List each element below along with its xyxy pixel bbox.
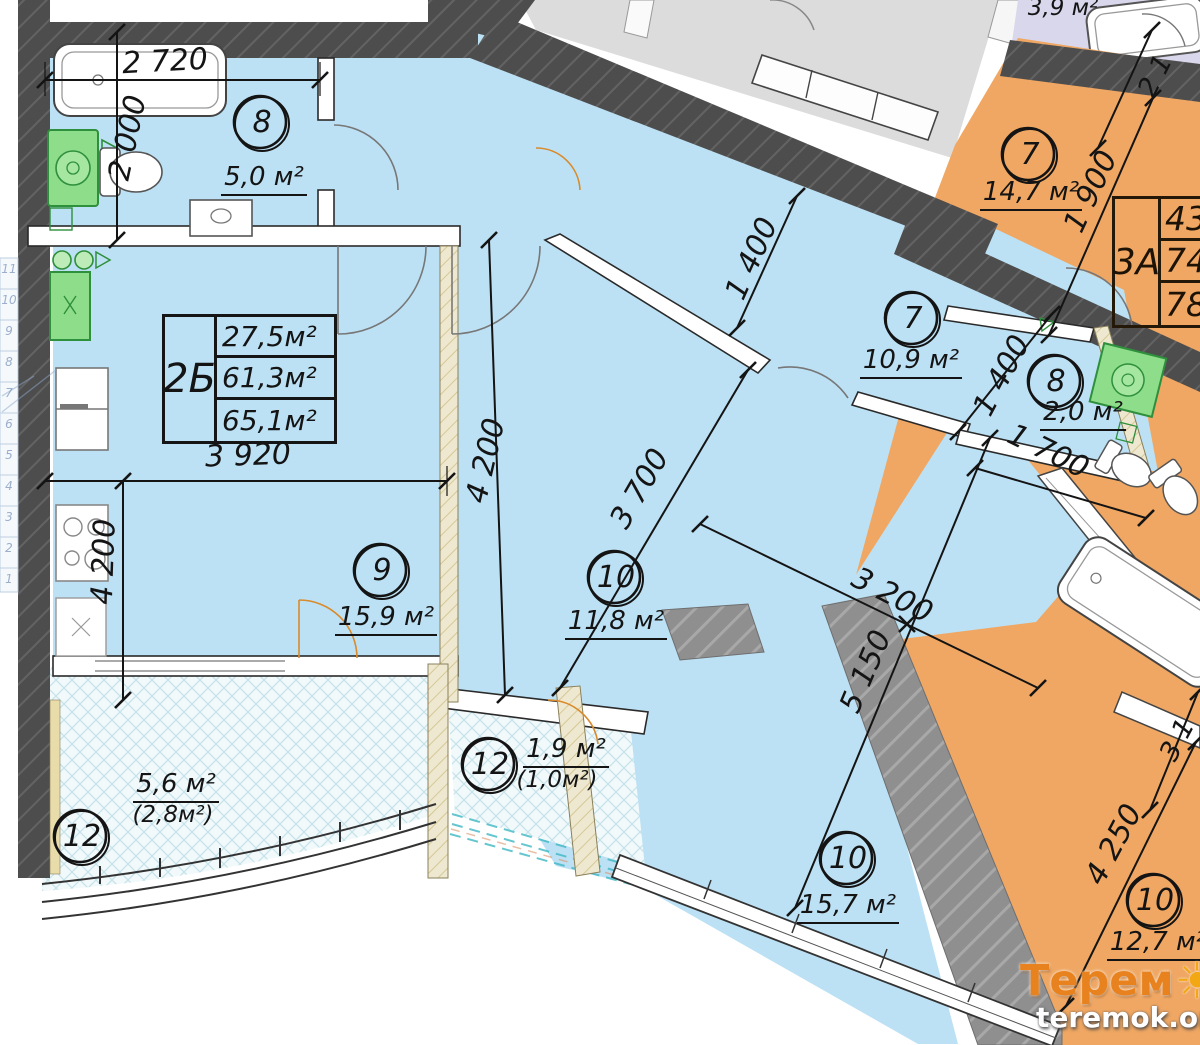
stair-number: 4 — [1, 479, 17, 493]
stair-number: 3 — [1, 510, 17, 524]
room-number-room-mid: 10 — [588, 551, 644, 607]
area-label-bath-main: 5,0 м² — [214, 164, 314, 191]
area-label-hall: 10,9 м² — [851, 347, 971, 374]
area-label-balcony-large: 5,6 м² — [116, 771, 236, 798]
area-alt-balcony-large: (2,8м²) — [113, 803, 233, 827]
apartment-3a-area-3: 78 — [1161, 283, 1200, 325]
apartment-3a-area-1: 43 — [1161, 199, 1200, 241]
apartment-2b-label: 2Б — [165, 317, 217, 441]
room-number-kitchen-living: 9 — [354, 544, 410, 600]
room-number-neighbor-7: 7 — [1002, 128, 1058, 184]
stair-number: 10 — [1, 293, 17, 307]
floor-plan: 8 9 10 7 8 12 12 10 7 10 5,0 м² 15,9 м² … — [0, 0, 1200, 1045]
stair-number: 9 — [1, 324, 17, 338]
dim-kitchen-height: 4 200 — [86, 501, 122, 622]
washing-machine-icon — [48, 130, 98, 206]
apartment-3a-area-2: 74 — [1161, 241, 1200, 283]
area-label-neighbor-partial: 3,9 м² — [1018, 0, 1108, 20]
room-number-bath-main: 8 — [234, 96, 290, 152]
stair-number: 8 — [1, 355, 17, 369]
watermark-brand-left: Терем — [1020, 956, 1174, 1006]
stair-number: 5 — [1, 448, 17, 462]
room-number-balcony-large: 12 — [54, 810, 110, 866]
watermark-brand: Терем ☀ К — [1020, 956, 1200, 1006]
sink-icon — [190, 200, 252, 236]
area-label-balcony-small: 1,9 м² — [506, 736, 626, 763]
area-label-room-bottom: 15,7 м² — [788, 892, 908, 919]
room-number-hall: 7 — [885, 292, 941, 348]
apartment-3a-label: 3А — [1115, 199, 1161, 325]
apartment-2b-table: 2Б 27,5м² 61,3м² 65,1м² — [162, 314, 337, 444]
watermark-url: teremok.org.ua — [1036, 1001, 1200, 1034]
stair-number: 1 — [1, 572, 17, 586]
apartment-2b-area-1: 27,5м² — [217, 317, 334, 358]
apartment-2b-area-2: 61,3м² — [217, 358, 334, 399]
area-label-bath-small: 2,0 м² — [1023, 399, 1143, 426]
room-number-neighbor-10: 10 — [1127, 874, 1183, 930]
room-number-room-bottom: 10 — [820, 832, 876, 888]
stair-number: 7 — [1, 386, 17, 400]
area-label-room-mid: 11,8 м² — [556, 608, 676, 635]
sun-logo-icon: ☀ — [1175, 956, 1200, 1006]
apartment-3a-table: 3А 43 74 78 — [1112, 196, 1200, 328]
apartment-2b-area-3: 65,1м² — [217, 400, 334, 441]
stair-number: 2 — [1, 541, 17, 555]
fridge-icon — [56, 368, 108, 450]
stair-number: 6 — [1, 417, 17, 431]
stair-number: 11 — [1, 262, 17, 276]
area-label-kitchen-living: 15,9 м² — [326, 604, 446, 631]
area-alt-balcony-small: (1,0м²) — [497, 768, 617, 792]
